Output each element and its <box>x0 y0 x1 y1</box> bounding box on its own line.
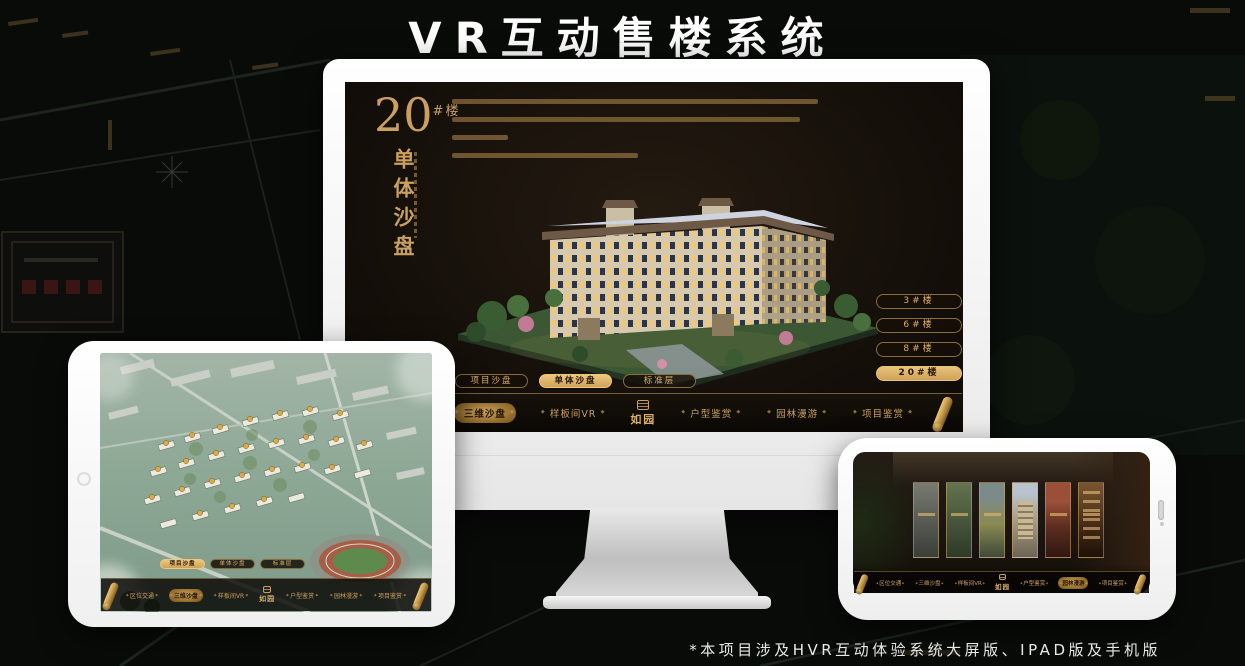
ipad-tab-group: 项目沙盘 单体沙盘 标准层 <box>160 559 305 569</box>
ipad-brand-logo[interactable]: 如园 <box>259 586 275 604</box>
phone-nav-item-location[interactable]: 区位交通 <box>875 577 905 589</box>
phone-gallery-panels <box>913 482 1104 558</box>
brand-logo[interactable]: 如园 <box>630 400 656 427</box>
page: VR互动售楼系统 20#楼 单体沙盘 <box>0 0 1245 666</box>
unit-title-panel: 20#楼 <box>374 92 464 138</box>
building-button-6[interactable]: 6#楼 <box>876 318 962 333</box>
nav-item-project-gallery[interactable]: 项目鉴赏 <box>852 403 914 423</box>
ipad-nav-item-3d-sandbox[interactable]: 三维沙盘 <box>169 589 203 602</box>
ipad-aerial-masterplan[interactable] <box>100 353 432 612</box>
phone-camera-dot-icon <box>1160 522 1164 526</box>
ipad-home-button[interactable] <box>77 472 91 486</box>
nav-item-garden-tour[interactable]: 园林漫游 <box>766 403 828 423</box>
ipad-nav-item-showroom-vr[interactable]: 样板间VR <box>213 589 249 602</box>
phone-nav-item-project-gallery[interactable]: 项目鉴赏 <box>1098 577 1128 589</box>
phone-nav-item-3d-sandbox[interactable]: 三维沙盘 <box>914 577 944 589</box>
gallery-panel-4[interactable] <box>1012 482 1038 558</box>
nav-item-showroom-vr[interactable]: 样板间VR <box>540 403 607 423</box>
building-button-3[interactable]: 3#楼 <box>876 294 962 309</box>
tab-single-sandbox[interactable]: 单体沙盘 <box>539 374 612 388</box>
ipad-nav-item-project-gallery[interactable]: 项目鉴赏 <box>373 589 407 602</box>
ipad-tab-project-sandbox[interactable]: 项目沙盘 <box>160 559 205 569</box>
phone-nav-item-floorplans[interactable]: 户型鉴赏 <box>1019 577 1049 589</box>
ipad-scroll-right-icon[interactable] <box>412 581 429 608</box>
scroll-handle-icon[interactable] <box>932 395 954 430</box>
seal-icon <box>637 400 649 410</box>
building-3d-render[interactable] <box>430 148 900 388</box>
phone-scroll-right-icon[interactable] <box>1134 573 1147 592</box>
phone-brand-logo[interactable]: 如园 <box>995 574 1010 591</box>
ipad-scroll-left-icon[interactable] <box>102 581 119 608</box>
tab-standard-floor[interactable]: 标准层 <box>623 374 696 388</box>
ipad-screen <box>100 353 432 612</box>
phone-camera-icon <box>1158 500 1164 520</box>
tab-project-sandbox[interactable]: 项目沙盘 <box>455 374 528 388</box>
ipad-nav-item-location[interactable]: 区位交通 <box>125 589 159 602</box>
unit-number: 20 <box>374 92 433 138</box>
footnote-text: *本项目涉及HVR互动体验系统大屏版、IPAD版及手机版 <box>689 639 1161 660</box>
page-title: VR互动售楼系统 <box>0 4 1245 66</box>
gallery-panel-6[interactable] <box>1078 482 1104 558</box>
seal-icon <box>999 574 1006 580</box>
nav-item-3d-sandbox[interactable]: 三维沙盘 <box>454 403 516 423</box>
building-button-20[interactable]: 20#楼 <box>876 366 962 381</box>
monitor-tab-group: 项目沙盘 单体沙盘 标准层 <box>455 374 696 388</box>
unit-subtitle-english-microtext <box>414 152 417 238</box>
ipad-nav-item-garden-tour[interactable]: 园林漫游 <box>329 589 363 602</box>
gallery-panel-5[interactable] <box>1045 482 1071 558</box>
ipad-tab-single-sandbox[interactable]: 单体沙盘 <box>210 559 255 569</box>
gallery-panel-1[interactable] <box>913 482 939 558</box>
phone-nav-bar: 区位交通 三维沙盘 样板间VR 如园 户型鉴赏 园林漫游 项目鉴赏 <box>854 571 1149 593</box>
background-plaque <box>2 232 123 332</box>
monitor-base <box>543 596 771 609</box>
seal-icon <box>263 586 271 593</box>
phone-nav-item-garden-tour[interactable]: 园林漫游 <box>1058 577 1088 589</box>
phone-scroll-left-icon[interactable] <box>856 573 869 592</box>
gallery-panel-3[interactable] <box>979 482 1005 558</box>
building-button-group: 3#楼 6#楼 8#楼 20#楼 <box>876 294 966 390</box>
nav-item-floorplans[interactable]: 户型鉴赏 <box>680 403 742 423</box>
building-button-8[interactable]: 8#楼 <box>876 342 962 357</box>
ipad-nav-bar: 区位交通 三维沙盘 样板间VR 如园 户型鉴赏 园林漫游 项目鉴赏 <box>101 578 431 611</box>
gallery-panel-2[interactable] <box>946 482 972 558</box>
ipad-nav-item-floorplans[interactable]: 户型鉴赏 <box>285 589 319 602</box>
ipad-tab-standard-floor[interactable]: 标准层 <box>260 559 305 569</box>
phone-nav-item-showroom-vr[interactable]: 样板间VR <box>954 577 986 589</box>
